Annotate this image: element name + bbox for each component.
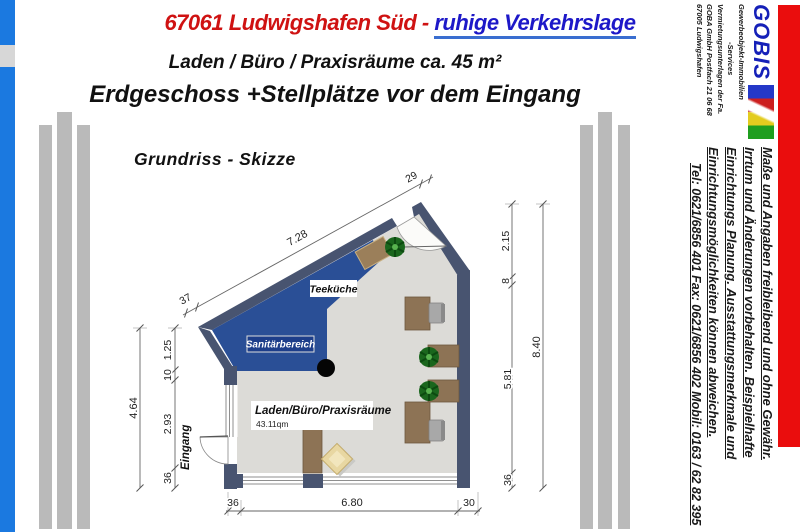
label-teekueche: Teeküche [309,280,357,297]
column [317,359,335,377]
svg-text:37: 37 [178,291,194,307]
svg-text:2.15: 2.15 [500,231,512,252]
floor-plan: Grundriss - Skizze [0,0,800,532]
wall-left-block [224,366,237,385]
svg-text:29: 29 [404,169,420,185]
dimension-bottom: 36 6.80 30 [225,492,482,516]
svg-text:30: 30 [463,497,475,509]
svg-text:36: 36 [502,474,514,486]
wall-left-corner-block [224,464,237,489]
svg-text:8: 8 [500,278,512,284]
svg-text:Sanitärbereich: Sanitärbereich [246,340,315,351]
dimension-right-inner: 2.15 8 5.81 36 [500,201,519,492]
dimension-left-inner: 1.25 10 2.93 36 [162,325,182,492]
svg-text:Eingang: Eingang [180,425,192,470]
svg-text:7.28: 7.28 [285,228,310,249]
svg-text:Teeküche: Teeküche [309,284,357,296]
entrance-door [200,436,228,464]
wall-right [457,270,470,488]
flyer-page: 67061 Ludwigshafen Süd - ruhige Verkehrs… [0,0,800,532]
svg-text:1.25: 1.25 [162,340,174,361]
plant-icon [385,237,405,257]
svg-text:36: 36 [227,497,239,509]
svg-text:36: 36 [162,472,174,484]
plan-title: Grundriss - Skizze [134,149,296,169]
desk-1 [405,297,430,330]
label-main-room: Laden/Büro/Praxisräume 43.11qm [251,401,392,430]
svg-text:10: 10 [162,369,174,381]
svg-text:5.81: 5.81 [502,369,514,390]
office-chair [429,303,445,323]
cabinet [303,423,322,473]
dimension-left-total: 4.64 [128,325,147,492]
svg-text:2.93: 2.93 [162,414,174,435]
dimension-right-total: 8.40 [531,201,550,492]
desk-2 [405,402,430,443]
label-main-area: 43.11qm [256,419,288,429]
svg-text:8.40: 8.40 [531,336,543,357]
plant-icon [419,381,439,401]
label-sanitaerbereich: Sanitärbereich [246,336,315,352]
svg-text:4.64: 4.64 [128,397,140,418]
svg-text:Laden/Büro/Praxisräume: Laden/Büro/Praxisräume [255,405,392,417]
plant-icon [419,347,439,367]
svg-text:6.80: 6.80 [341,497,362,509]
label-eingang: Eingang [180,425,192,470]
office-chair [429,420,445,441]
